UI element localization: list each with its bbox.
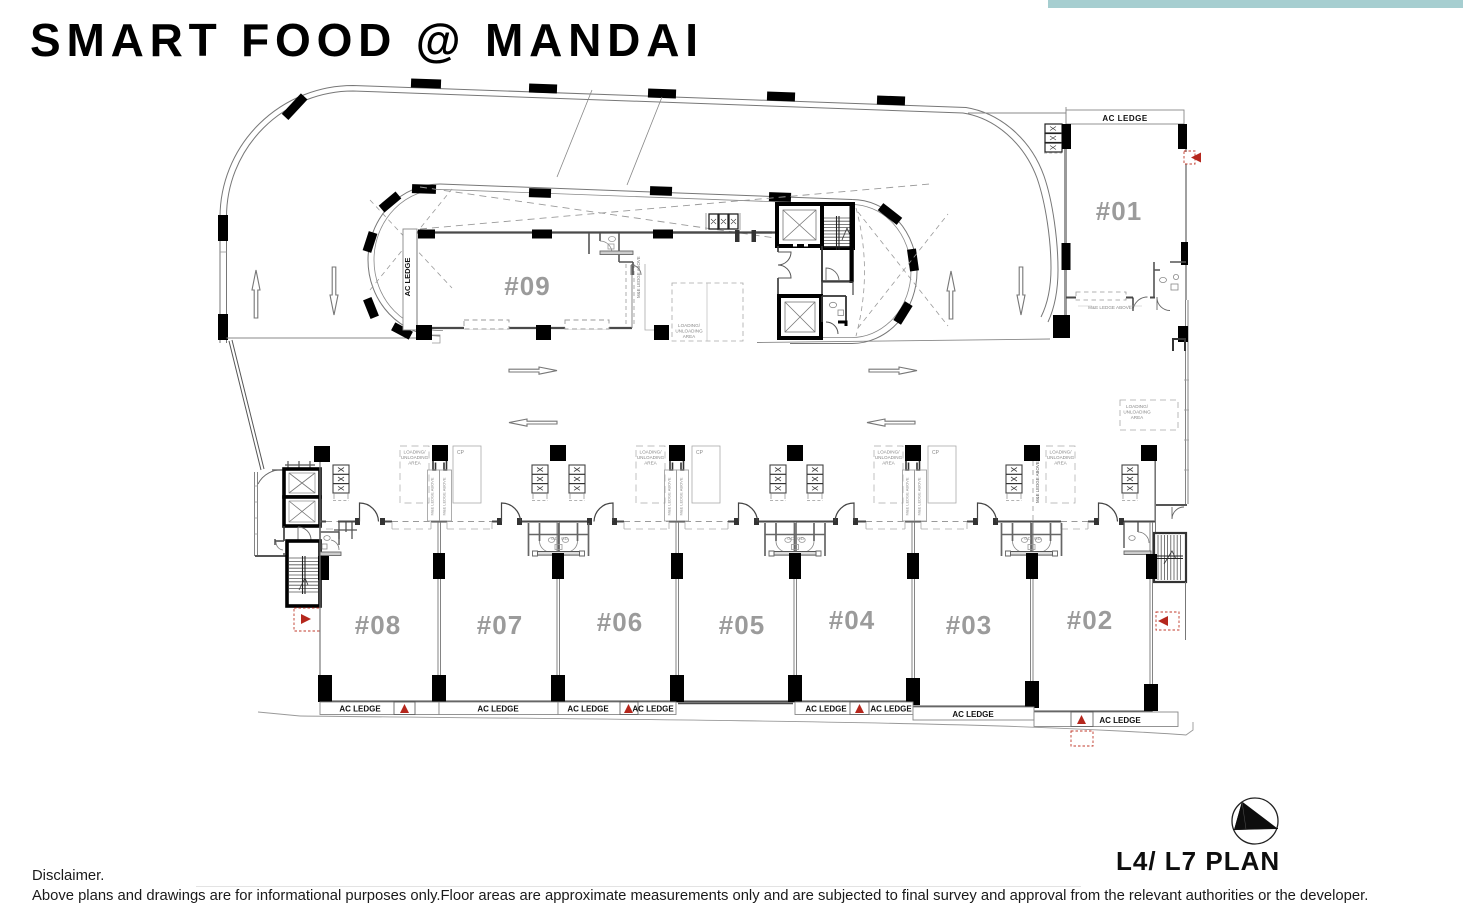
- svg-text:LOADING/: LOADING/: [1126, 404, 1149, 409]
- svg-text:#07: #07: [477, 610, 523, 640]
- svg-text:#06: #06: [597, 607, 643, 637]
- svg-text:AREA: AREA: [683, 334, 696, 339]
- svg-text:AC LEDGE: AC LEDGE: [339, 705, 381, 714]
- svg-text:UNLOADING: UNLOADING: [1123, 410, 1151, 415]
- svg-text:GD: GD: [787, 536, 795, 542]
- svg-text:AC LEDGE: AC LEDGE: [403, 258, 412, 297]
- svg-text:AC LEDGE: AC LEDGE: [952, 710, 994, 719]
- svg-text:#01: #01: [1096, 196, 1142, 226]
- svg-text:AC LEDGE: AC LEDGE: [567, 705, 609, 714]
- svg-text:AC LEDGE: AC LEDGE: [477, 705, 519, 714]
- svg-text:#08: #08: [355, 610, 401, 640]
- svg-text:AC LEDGE: AC LEDGE: [1102, 114, 1148, 123]
- svg-text:#04: #04: [829, 605, 875, 635]
- svg-text:GD: GD: [1024, 536, 1032, 542]
- svg-text:#09: #09: [504, 271, 550, 301]
- svg-text:LOADING/: LOADING/: [678, 323, 701, 328]
- svg-text:AC LEDGE: AC LEDGE: [805, 705, 847, 714]
- svg-text:GD: GD: [561, 536, 569, 542]
- svg-text:AREA: AREA: [1131, 415, 1144, 420]
- svg-text:GD: GD: [551, 536, 559, 542]
- svg-text:M&E LEDGE ABOVE: M&E LEDGE ABOVE: [1035, 461, 1040, 503]
- svg-text:#05: #05: [719, 610, 765, 640]
- svg-text:GD: GD: [797, 536, 805, 542]
- svg-text:AC LEDGE: AC LEDGE: [870, 705, 912, 714]
- svg-text:M&E LEDGE ABOVE: M&E LEDGE ABOVE: [636, 256, 641, 298]
- svg-text:#03: #03: [946, 610, 992, 640]
- svg-text:AC LEDGE: AC LEDGE: [1099, 716, 1141, 725]
- svg-text:AC LEDGE: AC LEDGE: [632, 705, 674, 714]
- svg-text:UNLOADING: UNLOADING: [675, 329, 703, 334]
- svg-text:GD: GD: [1034, 536, 1042, 542]
- svg-text:#02: #02: [1067, 605, 1113, 635]
- svg-text:M&E LEDGE ABOVE: M&E LEDGE ABOVE: [1088, 305, 1132, 310]
